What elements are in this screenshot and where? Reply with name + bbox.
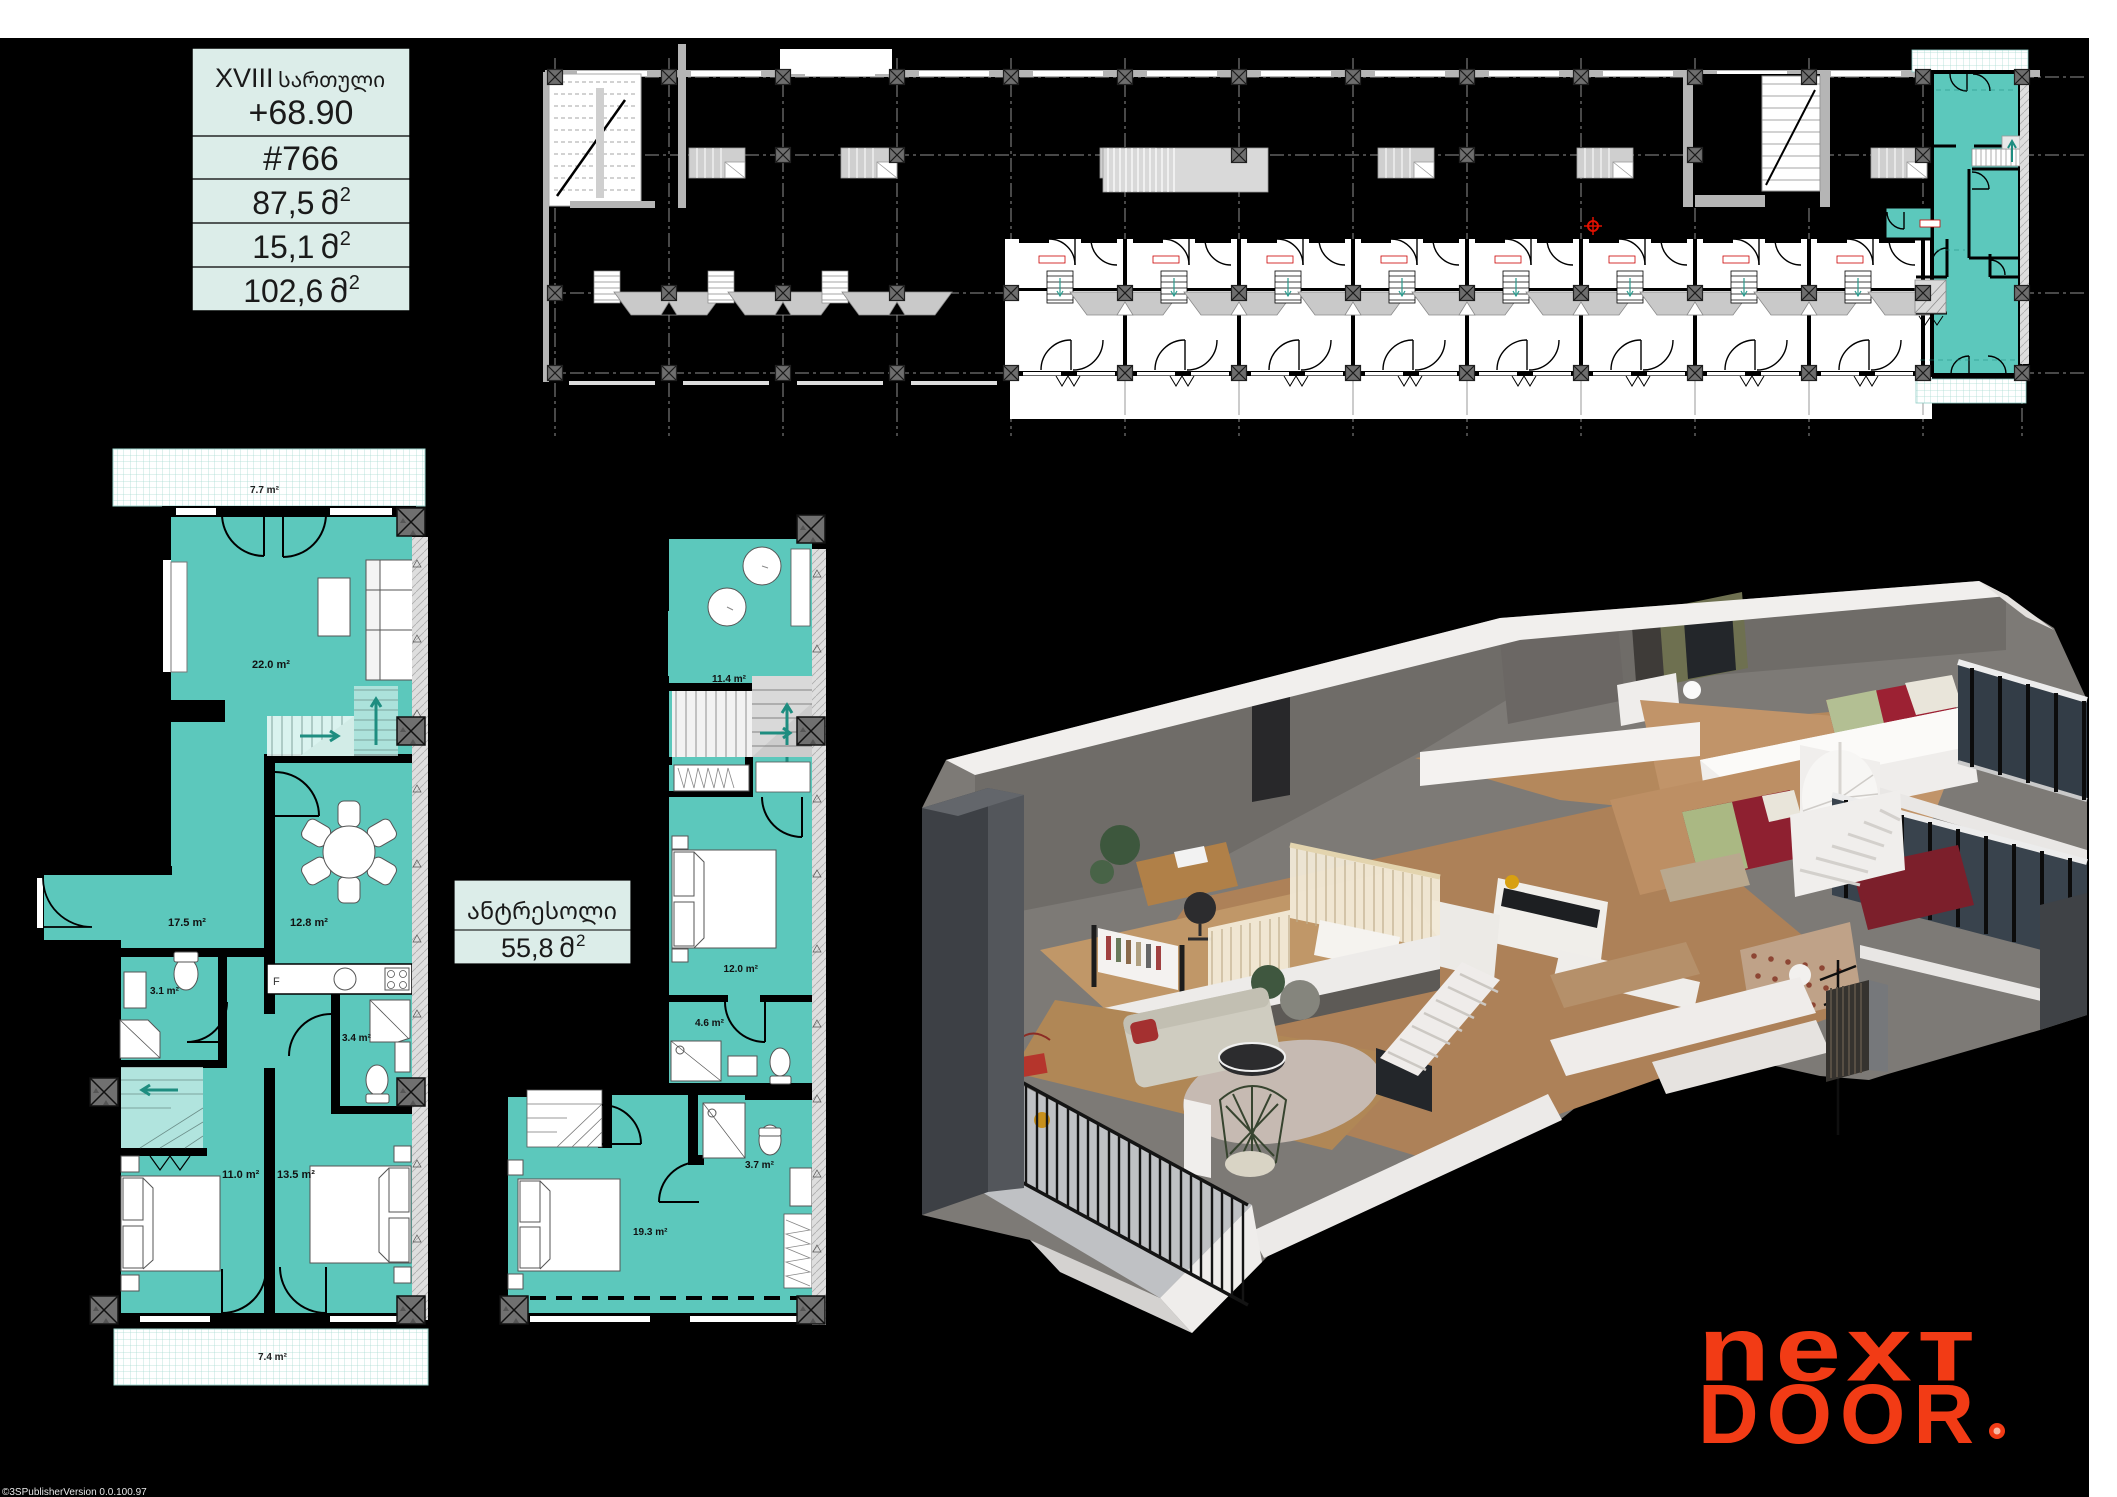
svg-text:11.4 m²: 11.4 m² (712, 674, 747, 685)
svg-text:#766: #766 (263, 140, 339, 178)
svg-text:2: 2 (340, 184, 351, 206)
svg-text:12.0 m²: 12.0 m² (724, 964, 759, 975)
svg-text:19.3 m²: 19.3 m² (633, 1227, 668, 1238)
svg-text:7.7 m²: 7.7 m² (250, 485, 280, 496)
svg-text:2: 2 (576, 931, 585, 950)
svg-text:7.4 m²: 7.4 m² (258, 1352, 288, 1363)
svg-text:13.5 m²: 13.5 m² (277, 1169, 315, 1181)
svg-text:55,8: 55,8 (501, 933, 554, 963)
svg-text:3.1 m²: 3.1 m² (150, 986, 180, 997)
svg-text:17.5 m²: 17.5 m² (168, 917, 206, 929)
svg-text:2: 2 (349, 272, 360, 294)
svg-text:©3SPublisherVersion 0.0.100.97: ©3SPublisherVersion 0.0.100.97 (2, 1487, 147, 1497)
svg-text:15,1: 15,1 (252, 229, 314, 265)
svg-text:3.4 m²: 3.4 m² (342, 1033, 372, 1044)
svg-text:+68.90: +68.90 (249, 94, 354, 132)
svg-text:2: 2 (340, 228, 351, 250)
svg-text:F: F (273, 976, 280, 988)
svg-text:11.0 m²: 11.0 m² (222, 1169, 260, 1181)
svg-text:XVIII: XVIII (215, 63, 274, 93)
svg-text:12.8 m²: 12.8 m² (290, 917, 328, 929)
svg-text:4.6 m²: 4.6 m² (695, 1018, 725, 1029)
svg-text:3.7 m²: 3.7 m² (745, 1160, 775, 1171)
svg-text:102,6: 102,6 (243, 273, 323, 309)
svg-text:87,5: 87,5 (252, 185, 314, 221)
svg-text:22.0 m²: 22.0 m² (252, 659, 290, 671)
